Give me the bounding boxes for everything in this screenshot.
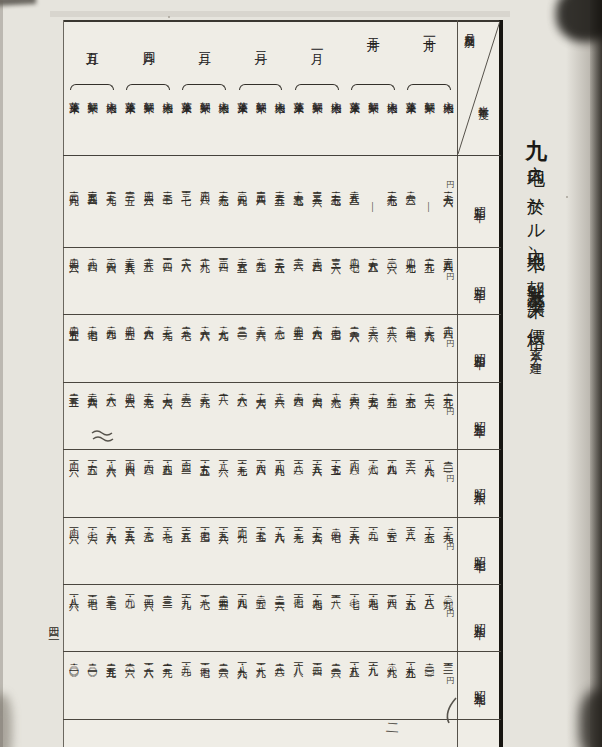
price-value: 二六・八四 bbox=[143, 320, 153, 324]
price-value: 一四・八〇 bbox=[349, 455, 359, 459]
price-cell: 一九・八一 bbox=[363, 657, 382, 719]
price-cell: 二六・六二 bbox=[251, 320, 270, 382]
variety-label: 蓬萊米 bbox=[349, 93, 360, 96]
price-cell: 二〇・六一 bbox=[120, 657, 139, 719]
price-value: 二三・八〇 bbox=[274, 657, 284, 661]
price-value: 二六・四〇 bbox=[293, 387, 303, 391]
price-cell: 一七・五六 bbox=[307, 522, 326, 584]
month-group: 二二・三六二〇・五〇一九・四八 bbox=[232, 589, 288, 651]
price-value: 二一・四七 bbox=[87, 589, 97, 593]
price-value: 二五・六七 bbox=[143, 387, 153, 391]
year-label: 昭和七年 bbox=[473, 547, 485, 555]
price-cell: 一四・三二 bbox=[176, 455, 195, 517]
price-cell: 一七・五三 bbox=[326, 455, 345, 517]
price-cell: 二一・四六 bbox=[139, 589, 158, 651]
variety-label: 蓬萊米 bbox=[237, 93, 248, 96]
price-cell: 二八・五一 bbox=[139, 252, 158, 314]
brace-icon bbox=[126, 84, 170, 90]
price-value: 二一・六八 bbox=[143, 657, 153, 661]
price-value: 二六・五七 bbox=[293, 185, 303, 189]
price-cell: 二〇・九〇 bbox=[438, 589, 457, 651]
scanned-page: 月別及種別 米穀年度 十一月內地米朝鮮米蓬萊米十二月內地米朝鮮米蓬萊米一月內地米… bbox=[0, 0, 602, 747]
price-value: 一七・〇八 bbox=[368, 455, 378, 459]
month-group: 三六・三五三三・四八三〇・九四 bbox=[232, 185, 288, 247]
year-cell: 昭和九年 bbox=[458, 651, 500, 719]
month-group: 一七・九二一六・七五一三・八二 bbox=[401, 522, 457, 584]
price-value: 二〇・〇〇 bbox=[68, 657, 78, 661]
price-value: 三五・三四 bbox=[87, 185, 97, 189]
brace-icon bbox=[407, 84, 451, 90]
month-group: 一七・五三一五・六八一三・八〇 bbox=[289, 455, 345, 517]
row-divider bbox=[63, 651, 501, 652]
month-group: 二〇・五三一九・〇二一五・六六 bbox=[345, 522, 401, 584]
price-cell: 一三・九七 bbox=[232, 455, 251, 517]
price-value: 一四・六四 bbox=[125, 455, 135, 459]
month-group: 三三・二六二八・三四二六・一二 bbox=[289, 252, 345, 314]
price-value: 一八・九六 bbox=[237, 657, 247, 661]
price-cell: 二六・五八 bbox=[363, 252, 382, 314]
price-cell: 三七・九一 bbox=[101, 185, 120, 247]
price-cell: 一八・五八 bbox=[345, 657, 364, 719]
row-divider bbox=[63, 449, 501, 450]
variety-header-row: 內地米朝鮮米蓬萊米 bbox=[289, 93, 345, 96]
year-cell-partial: 昭和 bbox=[458, 723, 500, 747]
price-value: 二九・四〇 bbox=[106, 320, 116, 324]
scan-smudge-top-left bbox=[0, 0, 36, 6]
year-cell: 昭和二年 bbox=[458, 155, 500, 247]
price-value: 二三・三二 bbox=[162, 589, 172, 593]
month-header-group: 三月內地米朝鮮米蓬萊米 bbox=[176, 20, 232, 155]
price-value: 二一・四六 bbox=[143, 589, 153, 593]
price-value: 一四・三二 bbox=[181, 455, 191, 459]
price-cell: 二三・四七 bbox=[401, 320, 420, 382]
price-cell: 二六・四〇 bbox=[289, 387, 308, 449]
price-cell: 二一・八七 bbox=[195, 589, 214, 651]
month-label: 五月 bbox=[83, 42, 101, 46]
price-value: 二一・八七 bbox=[199, 589, 209, 593]
price-value: 二八・一六 bbox=[387, 320, 397, 324]
price-value: 二六・五八 bbox=[368, 252, 378, 256]
price-value: 一八・八三 bbox=[424, 589, 434, 593]
price-cell: 二六・一八 bbox=[176, 252, 195, 314]
variety-label: 朝鮮米 bbox=[199, 93, 210, 96]
month-header-group: 十二月內地米朝鮮米蓬萊米 bbox=[345, 20, 401, 155]
price-value: 二六・六二 bbox=[256, 320, 266, 324]
month-group: 二七・四三二六・八四二四・五二 bbox=[289, 320, 345, 382]
price-cell: 二三・八〇 bbox=[270, 657, 289, 719]
price-cell: 一六・五〇 bbox=[83, 455, 102, 517]
row-divider bbox=[63, 247, 501, 248]
month-label: 四月 bbox=[139, 42, 157, 46]
price-value: 二七・五六 bbox=[368, 387, 378, 391]
month-group: 三一・〇四二八・五一二五・五六 bbox=[120, 252, 176, 314]
month-group: 二八・一六二六・二六二三・六六 bbox=[345, 320, 401, 382]
price-cell: 二七・七四 bbox=[83, 320, 102, 382]
price-cell: 二八・三四 bbox=[307, 252, 326, 314]
month-group: 一八・四九一六・四八一三・九七 bbox=[232, 455, 288, 517]
variety-label: 蓬萊米 bbox=[180, 93, 191, 96]
price-cell: 一八・六六 bbox=[101, 455, 120, 517]
price-value: 一八・八六 bbox=[68, 589, 78, 593]
price-value: 二三・五三 bbox=[68, 387, 78, 391]
price-value: 二一・一八 bbox=[330, 589, 340, 593]
price-row: 三七・六六―二六・〇三三六・七九―二五・八三三六・五七三三・三六二六・五七三六・… bbox=[64, 185, 457, 247]
price-cell: 二三・六〇 bbox=[214, 657, 233, 719]
price-cell: 一七・〇八 bbox=[363, 455, 382, 517]
price-value: ― bbox=[424, 202, 434, 213]
price-value: 一五・三六 bbox=[125, 522, 135, 526]
price-value: 三三・二六 bbox=[330, 252, 340, 256]
price-cell: 一九・〇二 bbox=[363, 522, 382, 584]
price-value: 二〇・五〇 bbox=[256, 589, 266, 593]
price-cell: 二七・五六 bbox=[363, 387, 382, 449]
price-value: 二六・九二 bbox=[199, 387, 209, 391]
price-cell: 三一・二七 bbox=[176, 185, 195, 247]
variety-label: 內地米 bbox=[218, 93, 229, 96]
price-value: 一三・八〇 bbox=[293, 455, 303, 459]
price-cell: 一九・四八 bbox=[232, 589, 251, 651]
month-label: 一月 bbox=[308, 42, 326, 46]
price-value: 二七・九八 bbox=[218, 320, 228, 324]
price-cell: 三七・六六 bbox=[438, 185, 457, 247]
price-value: 一七・五六 bbox=[312, 522, 322, 526]
month-group: 二一・一八一九・七四一七・四一 bbox=[289, 589, 345, 651]
price-value: 三三・四八 bbox=[256, 185, 266, 189]
price-value: 一八・五八 bbox=[349, 657, 359, 661]
price-value: ― bbox=[368, 202, 378, 213]
price-value: 二三・四五 bbox=[218, 589, 228, 593]
price-cell: 二三・三七 bbox=[101, 589, 120, 651]
month-header-group: 四月內地米朝鮮米蓬萊米 bbox=[120, 20, 176, 155]
price-cell: 二八・一九 bbox=[195, 252, 214, 314]
price-value: 一八・一八 bbox=[293, 657, 303, 661]
scan-speck bbox=[566, 196, 568, 198]
variety-label: 內地米 bbox=[106, 93, 117, 96]
price-cell: 二四・六三 bbox=[120, 387, 139, 449]
month-group: 三二・六五二九・〇三二六・三五 bbox=[232, 252, 288, 314]
price-cell: 二一・八九 bbox=[251, 657, 270, 719]
price-cell: 二五・八三 bbox=[345, 185, 364, 247]
price-cell: 二九・一五 bbox=[420, 252, 439, 314]
price-value: 一九・八一 bbox=[368, 657, 378, 661]
price-cell: 一八・一八 bbox=[289, 657, 308, 719]
price-value: 二〇・九〇 bbox=[443, 589, 453, 593]
year-cell: 昭和六年 bbox=[458, 449, 500, 517]
price-value: 二八・五一 bbox=[143, 252, 153, 256]
month-group: 二三・一九二一・六八二〇・六一 bbox=[120, 657, 176, 719]
price-cell: 三二・六五 bbox=[270, 252, 289, 314]
price-value: 二四・五五 bbox=[68, 320, 78, 324]
price-value: 二〇・六一 bbox=[125, 657, 135, 661]
price-value: 一九・三六 bbox=[218, 522, 228, 526]
price-cell: 一七・四三 bbox=[195, 522, 214, 584]
price-value: 二七・六六 bbox=[162, 387, 172, 391]
month-group: 一八・五四一六・四〇一四・六四 bbox=[120, 455, 176, 517]
month-group: 三七・三〇三四・六三三〇・一五 bbox=[120, 185, 176, 247]
price-cell: 一三・八二 bbox=[401, 522, 420, 584]
price-cell: 二〇・五〇 bbox=[251, 589, 270, 651]
month-group: 二七・九二二六・八四二四・五〇 bbox=[120, 320, 176, 382]
price-cell: 二一・四八 bbox=[382, 589, 401, 651]
price-cell: 一九・六八 bbox=[270, 522, 289, 584]
month-group: 一九・三六一七・四三一三・五八 bbox=[176, 522, 232, 584]
corner-label-rice-year: 米穀年度 bbox=[476, 97, 490, 103]
price-cell: 一八・二六 bbox=[214, 455, 233, 517]
price-cell: 一八・九六 bbox=[420, 455, 439, 517]
price-value: 一九・〇〇 bbox=[125, 589, 135, 593]
price-cell: 二九・四〇 bbox=[101, 320, 120, 382]
year-label: 昭和五年 bbox=[473, 412, 485, 420]
price-cell: 二七・六四 bbox=[307, 387, 326, 449]
price-cell: 二九・〇五 bbox=[382, 387, 401, 449]
price-cell: 一六・五五 bbox=[195, 455, 214, 517]
price-value: 一七・四一 bbox=[293, 589, 303, 593]
price-value: 一九・六八 bbox=[274, 522, 284, 526]
price-value: 二八・三四 bbox=[312, 252, 322, 256]
price-cell: 二三・八七 bbox=[176, 320, 195, 382]
header-bottom-divider bbox=[63, 155, 501, 156]
price-value: 三一・〇四 bbox=[162, 252, 172, 256]
price-value: 二一・四二 bbox=[312, 657, 322, 661]
price-value: 三四・六三 bbox=[143, 185, 153, 189]
corner-label-month-type: 月別及種別 bbox=[462, 26, 476, 31]
price-cell: 二四・五二 bbox=[289, 320, 308, 382]
price-cell: 三六・五七 bbox=[326, 185, 345, 247]
row-divider bbox=[63, 584, 501, 585]
row-divider bbox=[63, 382, 501, 383]
variety-label: 朝鮮米 bbox=[143, 93, 154, 96]
price-value: 二五・八三 bbox=[349, 185, 359, 189]
price-value: 二〇・一二 bbox=[443, 455, 453, 459]
price-cell: 三四・六三 bbox=[139, 185, 158, 247]
price-cell: 二〇・三〇 bbox=[420, 657, 439, 719]
price-value: 二六・一八 bbox=[181, 252, 191, 256]
variety-header-row: 內地米朝鮮米蓬萊米 bbox=[176, 93, 232, 96]
price-cell: 二六・三五 bbox=[232, 252, 251, 314]
price-cell: 一六・四〇 bbox=[139, 455, 158, 517]
month-group: 一九・六八一七・五二一四・二九 bbox=[232, 522, 288, 584]
row-divider bbox=[63, 517, 501, 518]
month-group: 二九・四〇二七・七四二四・五五 bbox=[64, 320, 120, 382]
price-cell: ― bbox=[363, 185, 382, 247]
price-value: 二三・六六 bbox=[349, 320, 359, 324]
price-cell: 二七・一六 bbox=[420, 387, 439, 449]
price-cell: 二八・六七 bbox=[326, 387, 345, 449]
price-value: 二六・四六 bbox=[349, 387, 359, 391]
price-cell: 二〇・一二 bbox=[438, 455, 457, 517]
month-group: 二七・六六二五・六七二四・六三 bbox=[120, 387, 176, 449]
price-value: 一八・九五 bbox=[405, 657, 415, 661]
price-cell: 二七・九八 bbox=[214, 320, 233, 382]
price-value: 一四・〇六 bbox=[68, 522, 78, 526]
month-label: 三月 bbox=[195, 42, 213, 46]
price-value: 一四・二六 bbox=[68, 455, 78, 459]
price-cell: 三〇・〇六 bbox=[382, 252, 401, 314]
price-cell: 三三・三六 bbox=[307, 185, 326, 247]
year-label: 昭和九年 bbox=[473, 681, 485, 689]
price-value: 一七・五二 bbox=[256, 522, 266, 526]
price-cell: 二七・六六 bbox=[251, 387, 270, 449]
row-divider bbox=[63, 719, 501, 720]
price-cell: 一七・四一 bbox=[289, 589, 308, 651]
price-value: 一九・六六 bbox=[106, 522, 116, 526]
price-cell: 三〇・六四 bbox=[101, 252, 120, 314]
month-group: 二三・六〇二一・四二一八・一八 bbox=[289, 657, 345, 719]
price-value: 三〇・六四 bbox=[106, 252, 116, 256]
price-value: 三二・六五 bbox=[274, 252, 284, 256]
price-cell: 二四・五五 bbox=[64, 320, 83, 382]
variety-label: 蓬萊米 bbox=[293, 93, 304, 96]
price-value: 二六・二六 bbox=[368, 320, 378, 324]
price-cell: 二四・九七 bbox=[401, 252, 420, 314]
price-value: 一六・五五 bbox=[199, 455, 209, 459]
price-cell: 三六・七九 bbox=[382, 185, 401, 247]
price-cell: 一八・九六 bbox=[232, 657, 251, 719]
price-value: 二九・一五 bbox=[443, 387, 453, 391]
price-cell: 二三・五三 bbox=[64, 387, 83, 449]
price-cell: 三五・三四 bbox=[83, 185, 102, 247]
price-value: 二三・二〇 bbox=[237, 320, 247, 324]
price-cell: 二三・四五 bbox=[214, 589, 233, 651]
price-value: 一三・五八 bbox=[181, 522, 191, 526]
price-value: 二六・八四 bbox=[312, 320, 322, 324]
price-cell: 一九・六六 bbox=[101, 522, 120, 584]
price-value: 一四・二九 bbox=[237, 522, 247, 526]
variety-header-row: 內地米朝鮮米蓬萊米 bbox=[232, 93, 288, 96]
price-value: 二四・九七 bbox=[405, 252, 415, 256]
year-cell: 昭和八年 bbox=[458, 584, 500, 651]
variety-label: 朝鮮米 bbox=[368, 93, 379, 96]
price-cell: 二八・六二 bbox=[270, 387, 289, 449]
year-label: 昭和六年 bbox=[473, 479, 485, 487]
price-value: 二六・八〇 bbox=[237, 387, 247, 391]
price-value: 三一・二七 bbox=[181, 185, 191, 189]
price-cell: 一七・〇七 bbox=[345, 589, 364, 651]
price-cell: 一四・六四 bbox=[120, 455, 139, 517]
price-cell: 二八・一六 bbox=[382, 320, 401, 382]
price-value: 二四・六三 bbox=[68, 252, 78, 256]
price-cell: 一九・八四 bbox=[382, 455, 401, 517]
price-cell: 二六・八四 bbox=[307, 320, 326, 382]
price-value: 一六・四〇 bbox=[143, 455, 153, 459]
variety-label: 朝鮮米 bbox=[424, 93, 435, 96]
price-value: 二一・八九 bbox=[256, 657, 266, 661]
price-value: 二七・四三 bbox=[330, 320, 340, 324]
price-cell: 一七・八三 bbox=[139, 522, 158, 584]
price-cell: 二〇・八九 bbox=[382, 657, 401, 719]
month-group: 二三・五九二二・〇〇二〇・〇〇 bbox=[64, 657, 120, 719]
month-group: 二〇・八九一九・八一一八・五八 bbox=[345, 657, 401, 719]
price-cell: 二〇・五三 bbox=[382, 522, 401, 584]
price-cell: 二〇・〇〇 bbox=[64, 657, 83, 719]
price-cell: 一九・四七 bbox=[363, 589, 382, 651]
price-value: 二六・七五 bbox=[405, 387, 415, 391]
price-value: 二七・七四 bbox=[87, 320, 97, 324]
price-value: 一九・一九 bbox=[181, 589, 191, 593]
month-group: 二三・八〇二一・八九一八・九六 bbox=[232, 657, 288, 719]
price-value: 二六・九六 bbox=[424, 320, 434, 324]
price-cell: 三三・四八 bbox=[251, 185, 270, 247]
price-row: 二一・一二二〇・三〇一八・九五二〇・八九一九・八一一八・五八二三・六〇二一・四二… bbox=[64, 657, 457, 719]
variety-label: 朝鮮米 bbox=[255, 93, 266, 96]
variety-header-row: 內地米朝鮮米蓬萊米 bbox=[120, 93, 176, 96]
month-header-group: 二月內地米朝鮮米蓬萊米 bbox=[232, 20, 288, 155]
variety-label: 朝鮮米 bbox=[87, 93, 98, 96]
variety-header-row: 內地米朝鮮米蓬萊米 bbox=[345, 93, 401, 96]
price-value: 一九・二七 bbox=[162, 522, 172, 526]
price-cell: 一四・二六 bbox=[64, 455, 83, 517]
diagonal-divider bbox=[458, 21, 500, 154]
price-value: 二八・六二 bbox=[274, 387, 284, 391]
price-cell: 一九・二七 bbox=[158, 522, 177, 584]
price-cell: 一八・九五 bbox=[401, 657, 420, 719]
price-cell: 二一・四七 bbox=[83, 589, 102, 651]
variety-label: 內地米 bbox=[162, 93, 173, 96]
price-cell: 一八・四九 bbox=[270, 455, 289, 517]
price-value: 三七・六六 bbox=[443, 185, 453, 189]
month-group: 二八・六二二七・六六二六・八〇 bbox=[232, 387, 288, 449]
price-value: 一三・九七 bbox=[237, 455, 247, 459]
price-value: 二三・八七 bbox=[181, 320, 191, 324]
year-label: 昭和二年 bbox=[473, 197, 485, 205]
variety-label: 朝鮮米 bbox=[311, 93, 322, 96]
price-value: 一三・九七 bbox=[293, 522, 303, 526]
price-value: 一八・六六 bbox=[106, 455, 116, 459]
price-cell: 一五・六八 bbox=[307, 455, 326, 517]
price-value: 二八・一九 bbox=[199, 252, 209, 256]
price-row: 二九・一五二七・一六二六・七五二九・〇五二七・五六二六・四六二八・六七二七・六四… bbox=[64, 387, 457, 449]
price-value: 二三・六〇 bbox=[218, 657, 228, 661]
price-cell: 三六・三五 bbox=[270, 185, 289, 247]
price-value: 一七・五三 bbox=[330, 455, 340, 459]
price-value: 二四・五二 bbox=[293, 320, 303, 324]
section-title-text: 內地ニ於ケル內地米、朝鮮米及臺灣米ノ價格 bbox=[526, 152, 546, 322]
price-cell: 一六・九五 bbox=[401, 589, 420, 651]
month-label: 十二月 bbox=[364, 27, 382, 33]
month-header-group: 五月內地米朝鮮米蓬萊米 bbox=[64, 20, 120, 155]
price-value: 二一・七四 bbox=[199, 657, 209, 661]
price-cell: 一三・九七 bbox=[289, 522, 308, 584]
price-value: 三〇・四九 bbox=[68, 185, 78, 189]
price-value: 二八・〇四 bbox=[87, 252, 97, 256]
price-value: 二三・六〇 bbox=[330, 657, 340, 661]
scan-speck bbox=[168, 16, 170, 18]
scan-corner-smudge-bottom-right bbox=[580, 690, 602, 747]
price-cell: 三五・四八 bbox=[438, 252, 457, 314]
price-cell: 一九・二〇 bbox=[176, 657, 195, 719]
price-value: 二九・〇五 bbox=[387, 387, 397, 391]
price-cell: 一四・〇六 bbox=[64, 522, 83, 584]
month-group: 二〇・九〇一八・八三一六・九五 bbox=[401, 589, 457, 651]
year-label: 昭和四年 bbox=[473, 344, 485, 352]
month-group: 二一・四八一九・四七一七・〇七 bbox=[345, 589, 401, 651]
price-cell: 一九・一九 bbox=[176, 589, 195, 651]
price-cell: 二七・八〇 bbox=[270, 320, 289, 382]
price-value: 三六・五七 bbox=[330, 185, 340, 189]
price-row: 二〇・九〇一八・八三一六・九五二一・四八一九・四七一七・〇七二一・一八一九・七四… bbox=[64, 589, 457, 651]
price-value: 二七・八〇 bbox=[274, 320, 284, 324]
month-group: 二九・〇五二七・五六二六・四六 bbox=[345, 387, 401, 449]
price-cell: 二四・七〇 bbox=[345, 252, 364, 314]
price-cell: 一八・八三 bbox=[420, 589, 439, 651]
price-cell: 二八・四一 bbox=[438, 320, 457, 382]
price-cell: 二六・四六 bbox=[345, 387, 364, 449]
month-header-group: 一月內地米朝鮮米蓬萊米 bbox=[289, 20, 345, 155]
price-value: 三三・三六 bbox=[312, 185, 322, 189]
price-cell: 二九・一五 bbox=[438, 387, 457, 449]
month-group: 一八・六六一六・五〇一四・二六 bbox=[64, 455, 120, 517]
price-cell: 一八・五四 bbox=[158, 455, 177, 517]
